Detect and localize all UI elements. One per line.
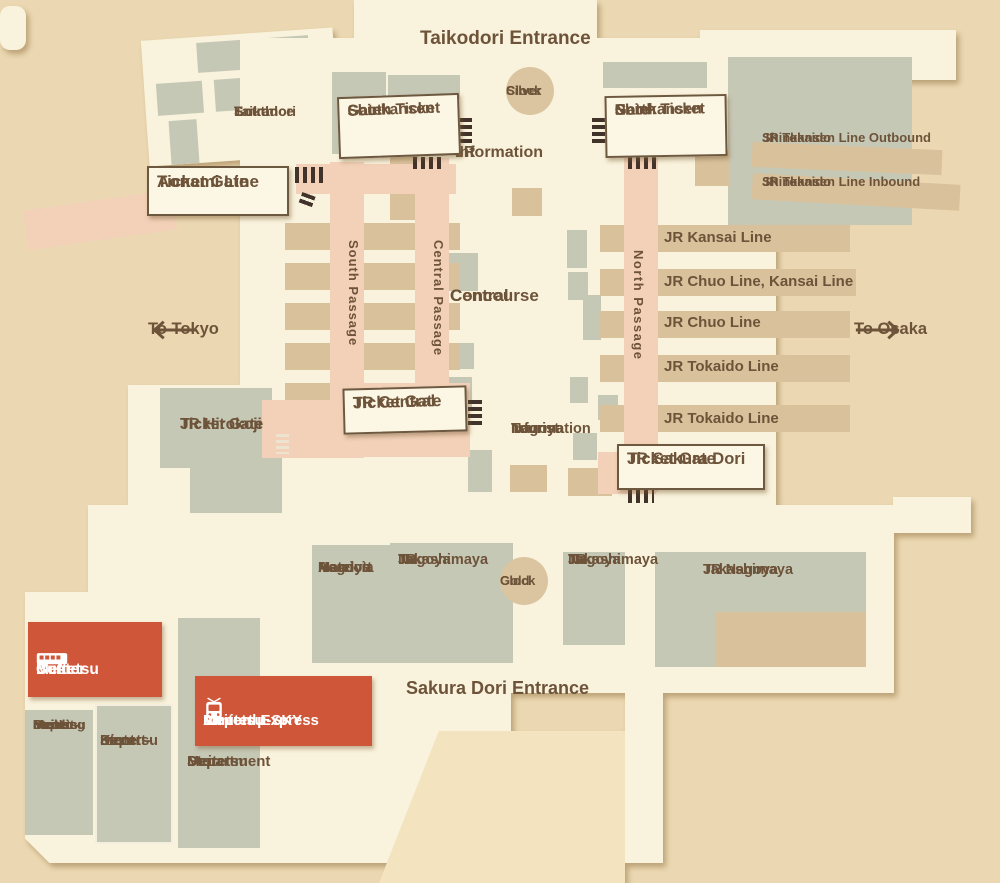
jr-central-ticket-gate-box: JR CentralTicket Gate bbox=[342, 385, 467, 434]
shinkansen-south-ticket-gate-box: ShinkansenSouth TicketGate bbox=[337, 93, 461, 159]
north-passage-label: North Passage bbox=[631, 250, 646, 361]
kansai-line-label: JR Kansai Line bbox=[664, 229, 772, 247]
arrow-right-icon bbox=[854, 317, 904, 343]
to-osaka-direction: To Osaka bbox=[854, 320, 927, 339]
tokaido-line-lower-label: JR Tokaido Line bbox=[664, 410, 779, 428]
chuo-line-label: JR Chuo Line bbox=[664, 314, 761, 332]
meitetsu-airport-express-badge: MeitetsuAirport μ-SKYLimited Express bbox=[195, 676, 372, 746]
silver-clock: SilverClock bbox=[506, 67, 554, 115]
south-passage-label: South Passage bbox=[346, 240, 361, 346]
sakura-dori-entrance-label: Sakura Dori Entrance bbox=[406, 678, 589, 699]
central-passage-label: Central Passage bbox=[431, 240, 446, 356]
tokaido-line-upper-label: JR Tokaido Line bbox=[664, 358, 779, 376]
arrow-left-icon bbox=[148, 317, 198, 343]
meitetsu-bus-center-badge: MeitetsuBusCenter bbox=[28, 622, 162, 697]
aonami-ticket-gate-box: Aonami LineTicket Gate bbox=[147, 166, 289, 216]
nagoya-station-map: Taikodori Entrance TaikodoriSouthEntranc… bbox=[0, 0, 1000, 883]
chuo-kansai-line-label: JR Chuo Line, Kansai Line bbox=[664, 273, 853, 291]
gold-clock: GoldClock bbox=[500, 557, 548, 605]
jr-sakura-dori-ticket-gate-box: JR Sakura DoriTicket Gate bbox=[617, 444, 765, 490]
labels-layer: Taikodori Entrance TaikodoriSouthEntranc… bbox=[0, 0, 1000, 883]
to-tokyo-direction: To Tokyo bbox=[148, 320, 219, 339]
taikodori-entrance-label: Taikodori Entrance bbox=[420, 28, 591, 50]
shinkansen-north-ticket-gate-box: ShinkansenNorth TicketGate bbox=[604, 94, 727, 158]
